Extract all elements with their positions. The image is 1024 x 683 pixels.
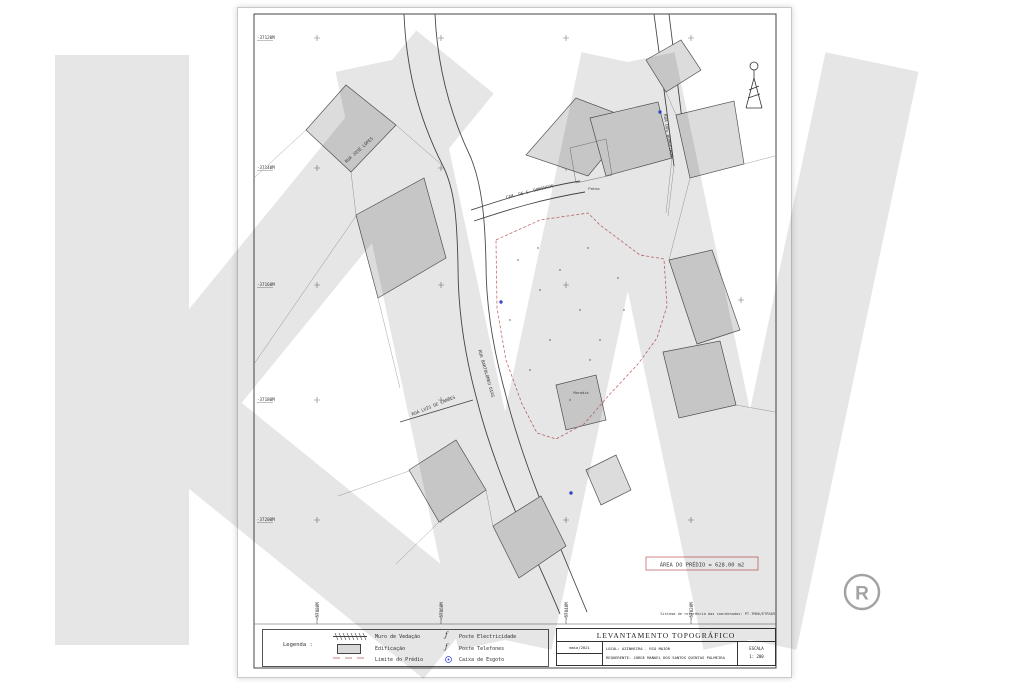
svg-text:-37200M: -37200M [257,517,275,522]
building-labels: Pateo Moradia [573,186,600,395]
legend: Legenda : Muro de Vedação Edificação Lim… [262,629,549,667]
building-symbol-icon [337,644,361,654]
legend-item-label: Poste Electricidade [459,634,516,640]
telephone-pole-icon: ƒ [445,643,448,651]
survey-drawing-sheet: -37120M -37140M -37160M -37180M -37200M … [237,7,792,678]
north-symbol [746,62,762,108]
pateo-label: Pateo [588,186,600,191]
survey-point-dots [509,247,624,400]
svg-text:-57040M: -57040M [564,602,569,620]
registered-trademark-icon: R [845,575,879,609]
topographic-map: -37120M -37140M -37160M -37180M -37200M … [238,8,791,677]
legend-item-label: Caixa de Esgoto [459,657,504,663]
svg-text:-37180M: -37180M [257,397,275,402]
boundary-symbol-icon [333,656,367,662]
grid-labels-bottom: -57080M -57060M -57040M -57020M [315,602,694,624]
scale-value: 1: 200 [738,653,775,661]
svg-text:-57060M: -57060M [439,602,444,620]
wall-symbol-icon [333,633,367,642]
legend-item-label: Limite do Prédio [375,657,423,663]
title-block: LEVANTAMENTO TOPOGRÁFICO maio/2021 LOCAL… [556,628,776,666]
registered-letter: R [855,584,869,605]
svg-text:-57020M: -57020M [689,602,694,620]
svg-text:-57080M: -57080M [315,602,320,620]
legend-item-label: Muro de Vedação [375,634,420,640]
requester-line: REQUERENTE: JORGE MANUEL DOS SANTOS QUIN… [606,653,734,662]
svg-text:-37160M: -37160M [257,282,275,287]
street-label: RUA LUIS DE CAMÕES [411,393,457,417]
legend-item-label: Edificação [375,646,405,652]
moradia-label: Moradia [573,391,588,395]
drawing-date: maio/2021 [557,642,602,654]
legend-title: Legenda : [283,642,313,648]
electricity-pole-icon: ƒ [445,631,448,639]
scale-cell: ESCALA 1: 200 [737,642,775,665]
buildings [306,40,744,578]
sewer-box-icon [444,655,453,666]
local-line: LOCAL: AZINHEIRA - RIO MAIOR [606,644,734,653]
page: -37120M -37140M -37160M -37180M -37200M … [0,0,1024,683]
street-label: RUA BARTOLOMEU DIAS [476,349,495,398]
drawing-title: LEVANTAMENTO TOPOGRÁFICO [557,629,775,642]
street-label: CAM. DE S. DOMINGOS [505,183,555,201]
svg-text:-37120M: -37120M [257,35,275,40]
datum-note: Sistema de referência das coordenadas: P… [660,612,775,616]
area-label-box: ÁREA DO PRÉDIO = 628.00 m2 [646,557,758,570]
date-cell: maio/2021 [557,642,603,665]
legend-item-label: Poste Telefones [459,646,504,652]
grid-labels-left: -37120M -37140M -37160M -37180M -37200M [257,35,275,522]
svg-text:-37140M: -37140M [257,165,275,170]
scale-label: ESCALA [738,645,775,653]
area-label: ÁREA DO PRÉDIO = 628.00 m2 [660,561,744,569]
project-info-cell: LOCAL: AZINHEIRA - RIO MAIOR REQUERENTE:… [603,642,737,665]
